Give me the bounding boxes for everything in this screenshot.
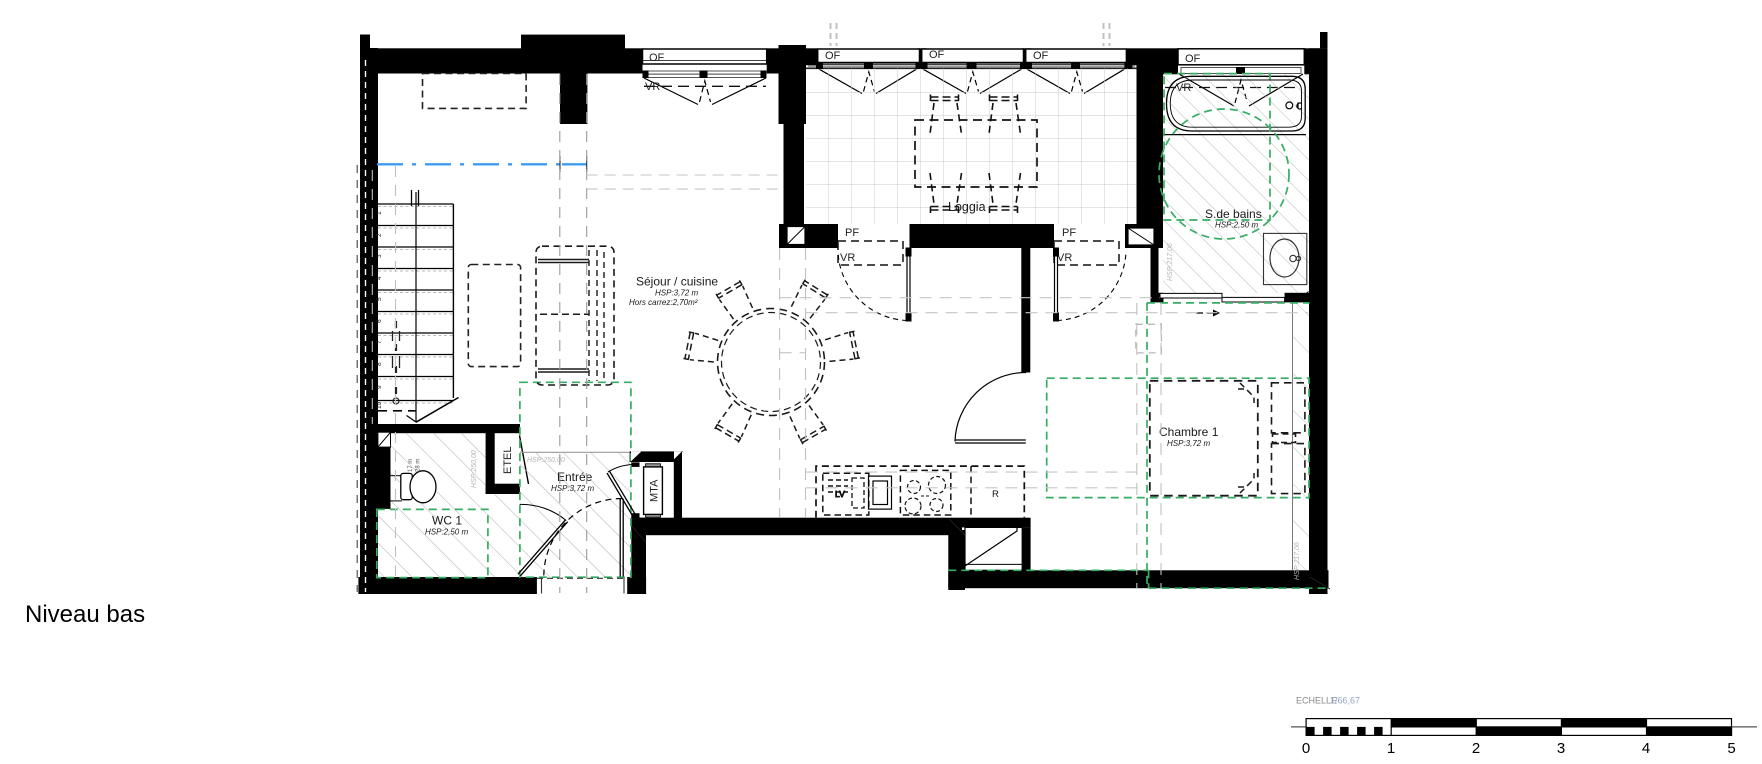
svg-text:8: 8 (376, 362, 383, 366)
svg-text:7: 7 (376, 340, 383, 344)
svg-text:3: 3 (1557, 740, 1565, 757)
svg-text:VR: VR (645, 81, 660, 93)
svg-text:9: 9 (376, 385, 383, 389)
svg-text:OF: OF (929, 49, 945, 61)
svg-text:OF: OF (1185, 53, 1201, 65)
svg-text:HSP:2,50 m: HSP:2,50 m (1215, 221, 1258, 230)
svg-text:17 m: 17 m (408, 459, 414, 472)
svg-text:S.de bains: S.de bains (1205, 207, 1262, 221)
svg-text:HSP:3,72 m: HSP:3,72 m (655, 289, 698, 298)
svg-text:PF: PF (845, 227, 859, 239)
svg-text:Chambre 1: Chambre 1 (1159, 425, 1219, 439)
svg-text:OF: OF (1033, 50, 1049, 62)
svg-text:0: 0 (1302, 740, 1310, 757)
svg-text:Hors carrez:2,70m²: Hors carrez:2,70m² (629, 298, 698, 307)
svg-text:2: 2 (1472, 740, 1480, 757)
svg-text:HSP:217,06: HSP:217,06 (1294, 542, 1301, 580)
svg-text:5: 5 (1727, 740, 1735, 757)
svg-text:OF: OF (825, 50, 841, 62)
svg-text:6: 6 (376, 319, 383, 323)
svg-text:10: 10 (376, 401, 383, 409)
svg-text:3: 3 (376, 254, 383, 258)
svg-text:R: R (992, 489, 999, 500)
svg-text:Entrée: Entrée (557, 470, 593, 484)
svg-text:LV: LV (835, 489, 845, 499)
svg-text:OF: OF (649, 52, 665, 64)
svg-text:28 m: 28 m (416, 459, 422, 472)
svg-text:HSP:250,00: HSP:250,00 (471, 450, 478, 488)
svg-text:HSP:250,00: HSP:250,00 (527, 457, 565, 464)
svg-text:ETEL: ETEL (502, 446, 514, 474)
svg-text:1: 1 (376, 211, 383, 215)
svg-text:Loggia: Loggia (948, 200, 986, 214)
svg-text:4: 4 (376, 276, 383, 280)
svg-text:1/66,67: 1/66,67 (1330, 696, 1360, 706)
svg-text:HSP:217,06: HSP:217,06 (1167, 243, 1174, 281)
svg-text:5: 5 (376, 297, 383, 301)
svg-text:VR: VR (840, 252, 855, 264)
svg-text:4: 4 (1642, 740, 1650, 757)
svg-text:2: 2 (376, 233, 383, 237)
svg-text:HSP:3,72 m: HSP:3,72 m (1167, 439, 1210, 448)
svg-text:1: 1 (1387, 740, 1395, 757)
svg-text:MTA: MTA (649, 479, 661, 502)
svg-text:HSP:2,50 m: HSP:2,50 m (425, 528, 468, 537)
svg-text:VR: VR (1057, 252, 1072, 264)
svg-text:HSP:3,72 m: HSP:3,72 m (551, 484, 594, 493)
svg-text:Séjour / cuisine: Séjour / cuisine (636, 275, 718, 289)
svg-text:PF: PF (1062, 227, 1076, 239)
svg-text:WC 1: WC 1 (432, 514, 462, 528)
svg-text:Niveau bas: Niveau bas (25, 601, 145, 628)
